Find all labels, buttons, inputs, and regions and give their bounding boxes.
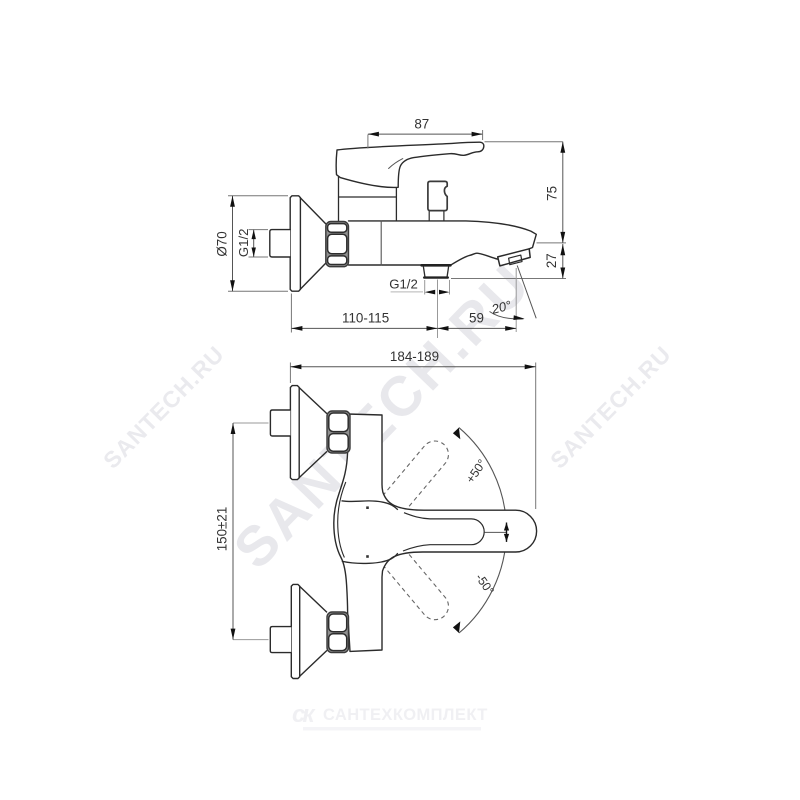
svg-text:59: 59: [469, 311, 484, 326]
svg-text:87: 87: [414, 117, 429, 132]
svg-text:G1/2: G1/2: [236, 229, 251, 258]
svg-text:110-115: 110-115: [342, 311, 389, 326]
svg-text:184-189: 184-189: [390, 349, 439, 364]
svg-text:G1/2: G1/2: [389, 276, 418, 291]
svg-text:75: 75: [544, 186, 559, 201]
svg-text:САНТЕХКОМПЛЕКТ: САНТЕХКОМПЛЕКТ: [323, 706, 488, 724]
svg-text:27: 27: [544, 253, 559, 268]
svg-text:Ø70: Ø70: [215, 231, 230, 256]
svg-text:150±21: 150±21: [215, 507, 230, 552]
